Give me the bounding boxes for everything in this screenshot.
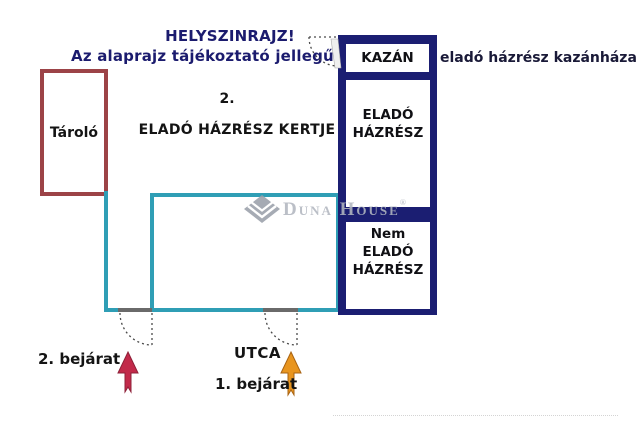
- street-label: UTCA: [234, 344, 281, 362]
- site-plan: HELYSZINRAJZ! Az alaprajz tájékoztató je…: [0, 0, 640, 421]
- entrance2-door-swing-icon: [118, 310, 152, 346]
- entrance2-arrow-icon: [118, 352, 138, 392]
- boiler-door-swing-icon: [309, 37, 341, 68]
- boiler-house-note: eladó házrész kazánháza: [440, 50, 637, 66]
- entrance2-label: 2. bejárat: [38, 350, 120, 368]
- entrance1-door-swing-icon: [263, 310, 298, 347]
- entrance1-label: 1. bejárat: [215, 375, 297, 393]
